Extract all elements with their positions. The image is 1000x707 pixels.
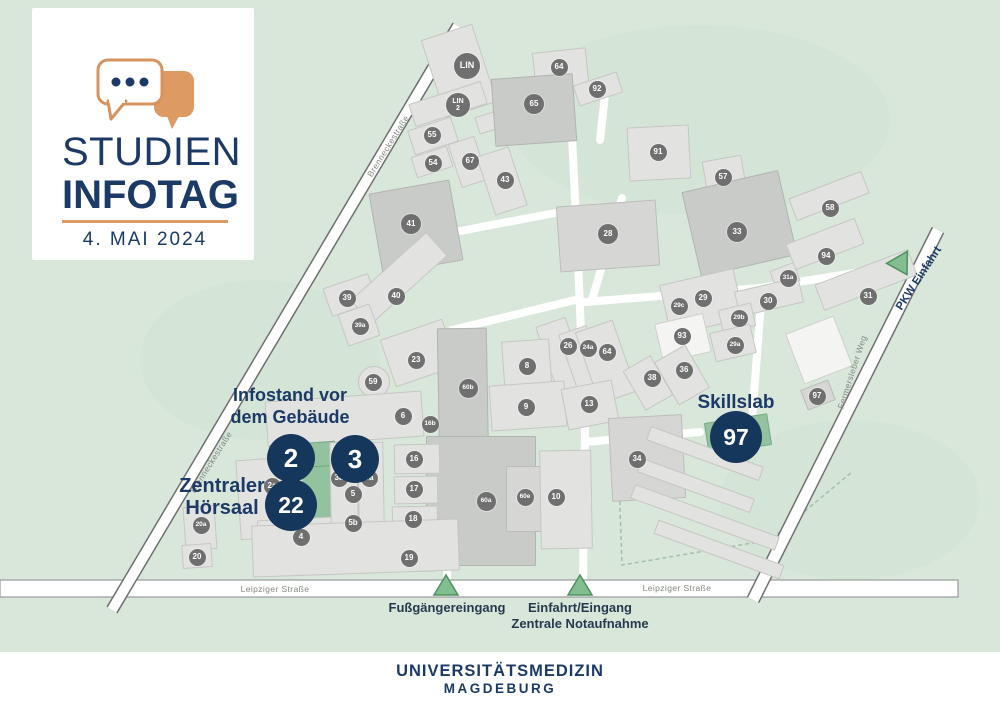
pedestrian-entrance-triangle-icon [432,573,460,597]
skillslab-label: Skillslab [664,392,808,414]
studieninfotag-flyer: Infostand vor dem Gebäude Zentraler Hörs… [0,0,1000,707]
building-number-badge: 28 [598,224,618,244]
building-number-badge: 5 [345,486,362,503]
building-number-badge: 67 [462,153,479,170]
footer: UNIVERSITÄTSMEDIZIN MAGDEBURG [0,652,1000,707]
building-number-badge: 16b [422,416,439,433]
road-leipziger-strasse [0,580,958,597]
event-location-marker: 97 [710,411,762,463]
building-number-badge: 9 [518,399,535,416]
infostand-label: Infostand vor dem Gebäude [212,384,368,428]
building-number-badge: LIN [454,53,480,79]
building-number-badge: 91 [650,144,667,161]
logo-divider [62,220,228,223]
building-number-badge: 39 [339,290,356,307]
footer-city-name: MAGDEBURG [0,681,1000,696]
building-number-badge: 5b [345,515,362,532]
building-number-badge: 26 [560,338,577,355]
building [539,450,593,550]
building-number-badge: 54 [425,155,442,172]
hoersaal-label-line2: Hörsaal [150,497,294,519]
building-number-badge: 29b [731,310,748,327]
building-number-badge: 65 [524,94,544,114]
building-number-badge: 36 [676,362,693,379]
building-number-badge: 39a [352,318,369,335]
building-number-badge: 29 [695,290,712,307]
speech-bubbles-icon [32,8,254,138]
building-number-badge: 18 [405,511,422,528]
building-number-badge: 41 [401,214,421,234]
building-number-badge: 38 [644,370,661,387]
building-number-badge: 92 [589,81,606,98]
building-number-badge: 58 [822,200,839,217]
building-number-badge: 64 [551,59,568,76]
notaufnahme-label-line2: Zentrale Notaufnahme [490,616,670,632]
zentraler-hoersaal-label: Zentraler Hörsaal [150,475,294,519]
building-number-badge: 13 [581,396,598,413]
building-number-badge: 34 [629,451,646,468]
building-number-badge: 8 [519,358,536,375]
event-date: 4. MAI 2024 [62,229,228,251]
emergency-entrance-triangle-icon [566,573,594,597]
building-number-badge: 97 [809,388,826,405]
building-number-badge: 23 [408,352,425,369]
building-number-badge: 57 [715,169,732,186]
building-number-badge: LIN 2 [446,93,470,117]
logo-title-infotag: INFOTAG [62,173,230,218]
notaufnahme-entrance-label: Einfahrt/Eingang Zentrale Notaufnahme [490,600,670,632]
building-number-badge: 55 [424,127,441,144]
event-location-marker: 3 [331,435,379,483]
notaufnahme-label-line1: Einfahrt/Eingang [490,600,670,616]
building-number-badge: 19 [401,550,418,567]
building-number-badge: 29c [671,298,688,315]
building-number-badge: 40 [388,288,405,305]
building-number-badge: 33 [727,222,747,242]
infostand-label-line2: dem Gebäude [212,406,368,428]
building-number-badge: 10 [548,489,565,506]
building-number-badge: 64 [599,344,616,361]
building-number-badge: 60e [517,489,534,506]
building-number-badge: 6 [395,408,412,425]
building-number-badge: 43 [497,172,514,189]
street-name-label: Leipziger Straße [241,584,310,594]
building-number-badge: 24a [580,340,597,357]
logo-card: STUDIEN INFOTAG 4. MAI 2024 [32,8,254,260]
building-number-badge: 31a [780,270,797,287]
building-number-badge: 29a [727,337,744,354]
building-number-badge: 17 [406,481,423,498]
logo-title-studien: STUDIEN [62,130,230,175]
street-name-label: Leipziger Straße [643,583,712,593]
building-number-badge: 4 [293,529,310,546]
footer-university-name: UNIVERSITÄTSMEDIZIN [0,662,1000,681]
building-number-badge: 31 [860,288,877,305]
building-number-badge: 20 [189,549,206,566]
building-number-badge: 20a [193,517,210,534]
building-number-badge: 16 [406,451,423,468]
infostand-label-line1: Infostand vor [212,384,368,406]
building-number-badge: 30 [760,293,777,310]
building-number-badge: 60a [477,492,496,511]
hoersaal-label-line1: Zentraler [150,475,294,497]
building-number-badge: 60b [459,379,478,398]
building-number-badge: 93 [674,328,691,345]
building-number-badge: 94 [818,248,835,265]
